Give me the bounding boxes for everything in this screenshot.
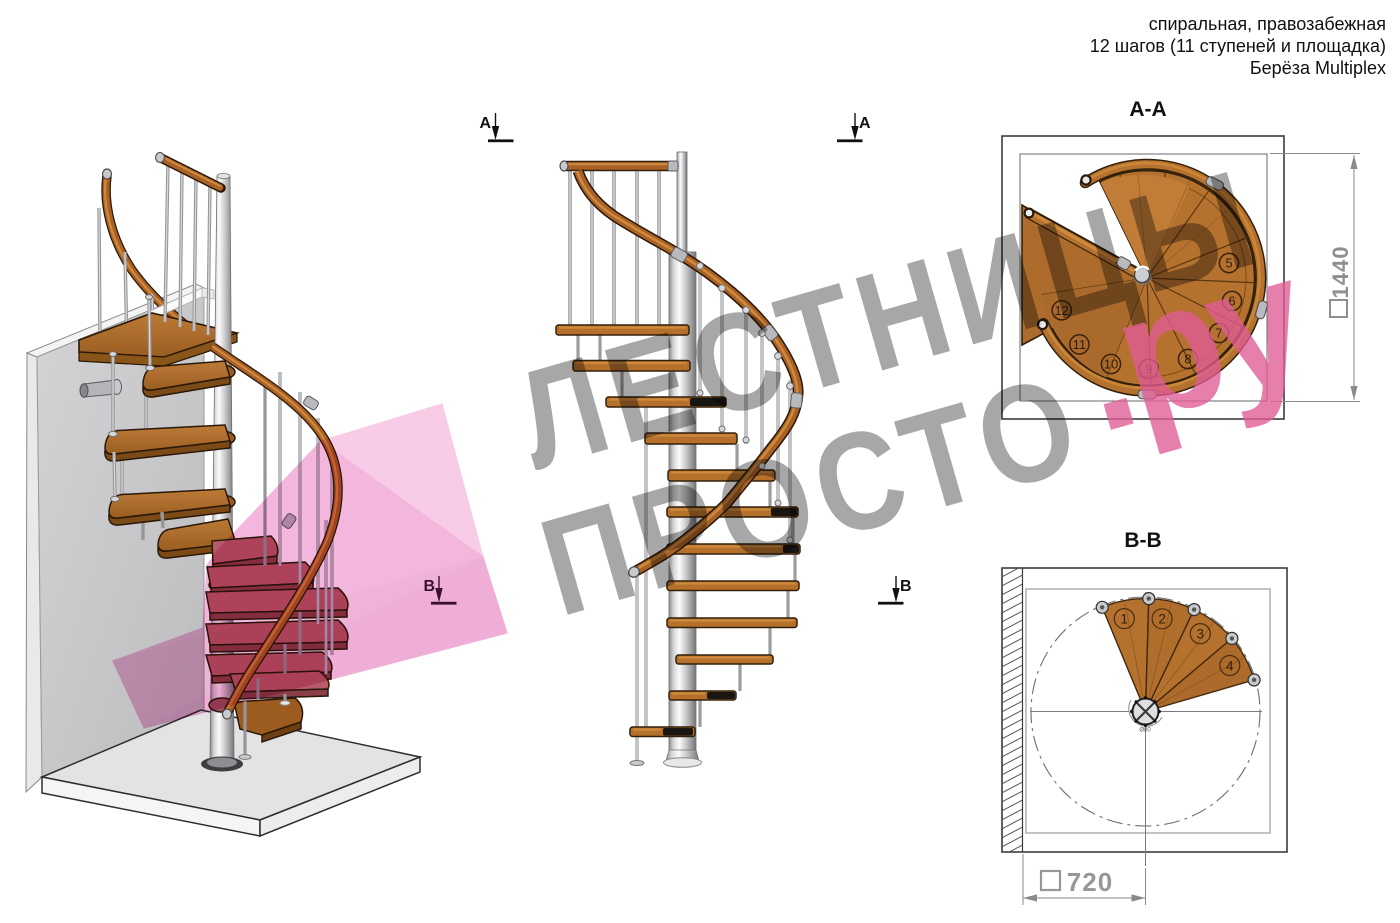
svg-text:2: 2	[1158, 612, 1166, 627]
svg-text:В: В	[900, 578, 912, 595]
svg-text:А-А: А-А	[1129, 98, 1166, 121]
svg-text:1: 1	[1121, 611, 1129, 626]
svg-text:3: 3	[1197, 626, 1205, 641]
svg-text:12 шагов (11 ступеней и площад: 12 шагов (11 ступеней и площадка)	[1090, 36, 1386, 56]
svg-text:спиральная, правозабежная: спиральная, правозабежная	[1149, 14, 1386, 34]
svg-text:1440: 1440	[1328, 246, 1353, 299]
svg-text:720: 720	[1067, 867, 1113, 897]
svg-text:4: 4	[1226, 658, 1234, 673]
svg-text:В-В: В-В	[1124, 529, 1161, 552]
svg-text:А: А	[479, 115, 491, 132]
svg-text:А: А	[859, 115, 871, 132]
svg-text:Ø80: Ø80	[1139, 728, 1151, 734]
svg-text:Берёза Multiplex: Берёза Multiplex	[1250, 58, 1386, 78]
svg-text:В: В	[423, 578, 435, 595]
